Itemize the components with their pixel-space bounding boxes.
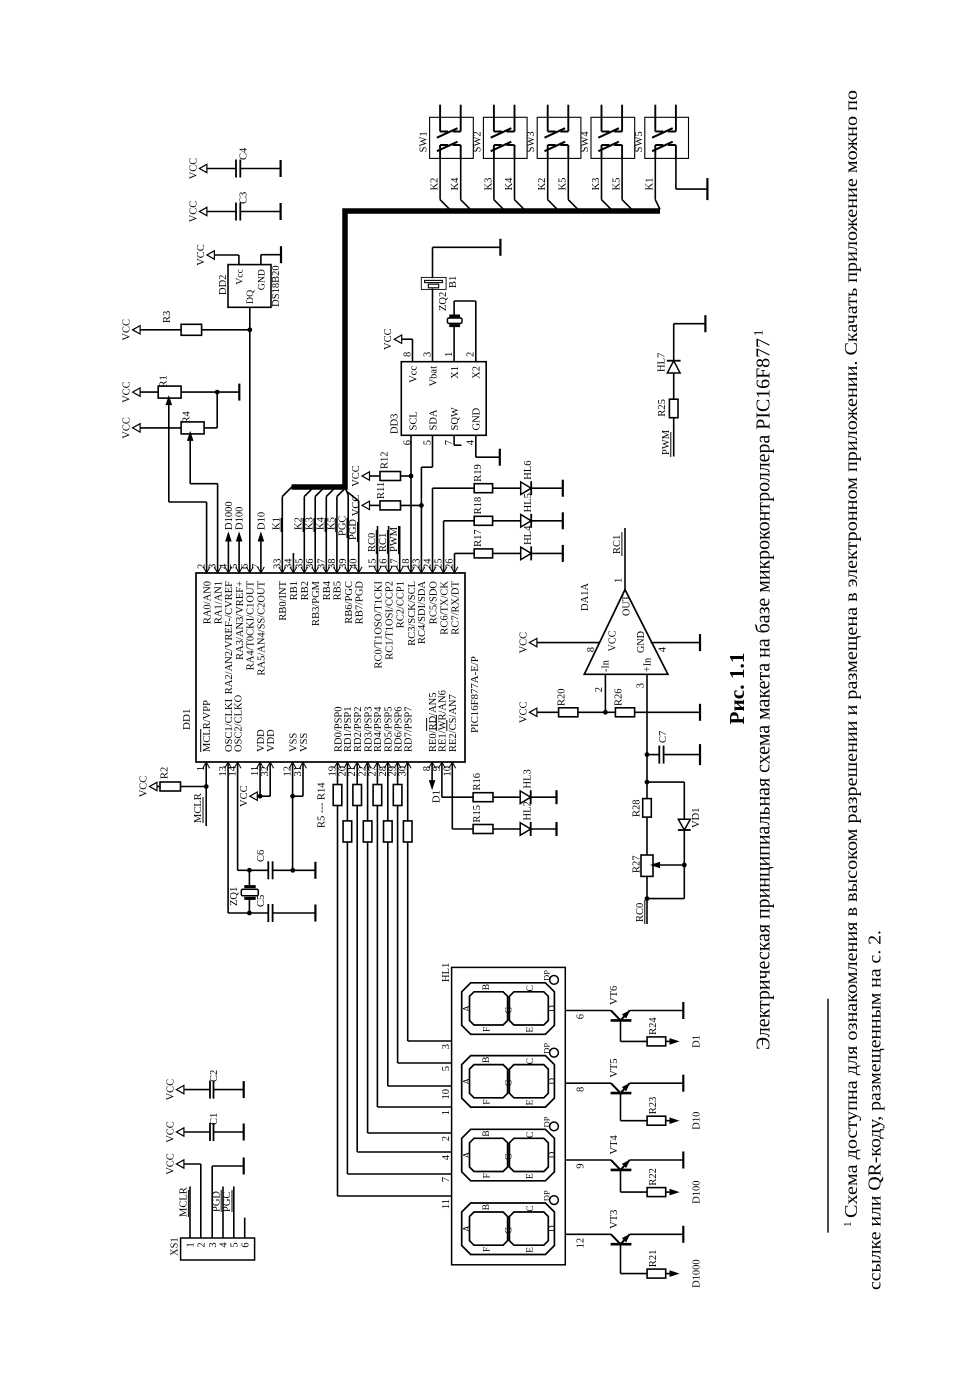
svg-text:DD2: DD2 — [218, 275, 229, 295]
svg-text:K2: K2 — [537, 178, 548, 191]
svg-text:VCC: VCC — [188, 201, 199, 223]
svg-text:R18: R18 — [473, 497, 484, 515]
svg-text:R15: R15 — [472, 805, 483, 823]
svg-text:DA1A: DA1A — [580, 583, 591, 611]
svg-text:VCC: VCC — [239, 785, 250, 807]
svg-text:2: 2 — [466, 352, 477, 357]
svg-text:D1: D1 — [432, 790, 443, 803]
svg-text:SW5: SW5 — [634, 131, 645, 152]
svg-text:A: A — [461, 1151, 472, 1158]
svg-text:RD4/PSP4: RD4/PSP4 — [373, 706, 384, 752]
svg-text:9: 9 — [576, 1164, 587, 1169]
svg-text:F: F — [482, 1247, 493, 1252]
svg-text:R16: R16 — [472, 773, 483, 791]
svg-text:Электрическая принципиальная с: Электрическая принципиальная схема макет… — [754, 338, 775, 1050]
svg-text:RD7/PSP7: RD7/PSP7 — [404, 706, 415, 752]
svg-text:VCC: VCC — [139, 776, 150, 798]
svg-text:D100: D100 — [692, 1180, 703, 1203]
svg-text:D1: D1 — [692, 1035, 703, 1048]
svg-text:RD2/PSP2: RD2/PSP2 — [353, 706, 364, 752]
svg-text:RB0/INT: RB0/INT — [278, 580, 289, 620]
svg-text:DP: DP — [542, 1116, 552, 1127]
svg-text:SCL: SCL — [408, 411, 419, 430]
svg-text:R3: R3 — [162, 311, 173, 323]
svg-text:VT4: VT4 — [609, 1135, 620, 1155]
svg-text:GND: GND — [256, 269, 267, 290]
svg-text:VCC: VCC — [351, 465, 362, 487]
svg-text:SDA: SDA — [428, 409, 439, 430]
svg-text:RB7/PGD: RB7/PGD — [355, 581, 366, 625]
svg-text:R17: R17 — [473, 529, 484, 547]
svg-text:DP: DP — [542, 970, 552, 981]
svg-text:VCC: VCC — [196, 244, 207, 266]
svg-text:VCC: VCC — [188, 158, 199, 180]
svg-text:VCC: VCC — [351, 495, 362, 517]
svg-text:4: 4 — [466, 439, 477, 445]
svg-text:G: G — [504, 1227, 515, 1234]
svg-text:C5: C5 — [256, 895, 267, 907]
svg-text:K4: K4 — [450, 177, 461, 191]
svg-text:GND: GND — [636, 631, 647, 653]
svg-text:K5: K5 — [558, 178, 569, 191]
svg-text:E: E — [525, 1247, 536, 1253]
svg-text:6: 6 — [402, 440, 413, 445]
svg-text:D: D — [547, 1151, 558, 1158]
svg-text:K2: K2 — [430, 178, 441, 191]
svg-text:VD1: VD1 — [691, 808, 702, 828]
svg-text:C: C — [525, 985, 536, 991]
svg-text:3: 3 — [208, 1242, 219, 1247]
svg-text:B: B — [481, 1130, 492, 1136]
svg-text:VSS: VSS — [288, 733, 299, 752]
svg-text:7: 7 — [444, 440, 455, 445]
svg-text:RB5: RB5 — [333, 581, 344, 600]
svg-text:F: F — [482, 1173, 493, 1178]
svg-text:ссылке или QR-коду, размещенны: ссылке или QR-коду, размещенным на с. 2. — [865, 930, 885, 1290]
svg-text:C3: C3 — [239, 192, 250, 204]
svg-text:R20: R20 — [557, 688, 568, 706]
svg-text:F: F — [482, 1027, 493, 1032]
svg-text:C7: C7 — [658, 731, 669, 743]
svg-text:Рис. 1.1: Рис. 1.1 — [725, 653, 749, 725]
svg-text:RB2: RB2 — [300, 581, 311, 600]
svg-text:-In: -In — [601, 660, 612, 672]
svg-text:PIC16F877A-E/P: PIC16F877A-E/P — [469, 656, 481, 733]
svg-text:VSS: VSS — [299, 733, 310, 752]
svg-text:D10: D10 — [692, 1112, 703, 1130]
svg-text:VCC: VCC — [122, 319, 133, 341]
svg-text:ZQ2: ZQ2 — [438, 292, 449, 311]
svg-text:MCLR/VPP: MCLR/VPP — [202, 700, 213, 752]
svg-text:10: 10 — [441, 1089, 452, 1100]
svg-text:DD3: DD3 — [390, 414, 401, 434]
svg-text:12: 12 — [576, 1238, 587, 1249]
svg-text:C4: C4 — [239, 147, 250, 160]
svg-text:VT6: VT6 — [609, 986, 620, 1005]
svg-text:C6: C6 — [256, 850, 267, 862]
svg-text:R1: R1 — [159, 375, 170, 387]
svg-text:Vcc: Vcc — [235, 268, 246, 284]
svg-text:RC4/SDI/SDA: RC4/SDI/SDA — [417, 581, 428, 644]
svg-text:K4: K4 — [504, 177, 515, 191]
svg-text:1: 1 — [842, 1222, 854, 1228]
svg-text:ZQ1: ZQ1 — [229, 887, 240, 906]
svg-text:5: 5 — [422, 440, 433, 445]
svg-text:8: 8 — [586, 647, 597, 652]
svg-text:D100: D100 — [235, 507, 246, 530]
svg-text:3: 3 — [422, 352, 433, 357]
svg-text:OUT: OUT — [622, 594, 633, 616]
svg-text:D1000: D1000 — [224, 501, 235, 530]
svg-text:8: 8 — [402, 352, 413, 357]
svg-text:DP: DP — [542, 1190, 552, 1201]
svg-text:D1000: D1000 — [692, 1259, 703, 1288]
svg-text:DD1: DD1 — [181, 709, 193, 730]
svg-text:4: 4 — [658, 646, 669, 652]
svg-text:R5 --- R14: R5 --- R14 — [317, 782, 328, 828]
svg-text:1: 1 — [441, 1110, 452, 1115]
svg-text:7: 7 — [441, 1177, 452, 1182]
svg-text:RA1/AN1: RA1/AN1 — [213, 581, 224, 624]
svg-text:RB1: RB1 — [289, 581, 300, 600]
svg-text:R21: R21 — [648, 1250, 659, 1268]
svg-text:A: A — [461, 1078, 472, 1085]
svg-text:VCC: VCC — [383, 328, 394, 350]
svg-text:GND: GND — [472, 407, 483, 430]
svg-text:RA4/T0CKI/C1OUT: RA4/T0CKI/C1OUT — [246, 580, 257, 670]
svg-text:RA3/AN3/VREF+: RA3/AN3/VREF+ — [235, 581, 246, 660]
svg-text:1: 1 — [614, 578, 625, 583]
svg-text:RC3/SCK/SCL: RC3/SCK/SCL — [407, 581, 418, 646]
svg-text:R23: R23 — [648, 1097, 659, 1115]
svg-text:1: 1 — [444, 352, 455, 357]
svg-text:X1: X1 — [450, 366, 461, 379]
svg-text:SQW: SQW — [450, 407, 461, 430]
svg-text:SW1: SW1 — [419, 131, 430, 152]
svg-text:D: D — [547, 1225, 558, 1232]
svg-text:SW2: SW2 — [472, 131, 483, 152]
svg-text:2: 2 — [196, 1242, 207, 1247]
svg-text:HL2: HL2 — [523, 801, 534, 820]
svg-text:SW4: SW4 — [580, 131, 591, 153]
svg-text:Vcc: Vcc — [408, 366, 419, 383]
svg-text:5: 5 — [441, 1066, 452, 1071]
svg-text:OSC2/CLKO: OSC2/CLKO — [233, 694, 244, 752]
svg-text:R25: R25 — [657, 399, 668, 417]
svg-text:D: D — [547, 1005, 558, 1012]
svg-text:MCLR: MCLR — [193, 793, 204, 823]
svg-text:HL5: HL5 — [523, 493, 534, 512]
svg-text:RB6/PGC: RB6/PGC — [344, 581, 355, 624]
svg-text:3: 3 — [636, 683, 647, 688]
svg-text:2: 2 — [441, 1136, 452, 1141]
svg-text:VCC: VCC — [165, 1121, 176, 1143]
svg-text:RE2/CS/AN7: RE2/CS/AN7 — [448, 694, 459, 752]
svg-text:VCC: VCC — [165, 1153, 176, 1175]
svg-text:K3: K3 — [483, 178, 494, 191]
svg-text:HL3: HL3 — [523, 769, 534, 788]
svg-text:6: 6 — [576, 1014, 587, 1019]
svg-text:F: F — [482, 1099, 493, 1104]
svg-text:B: B — [481, 984, 492, 990]
svg-text:B: B — [481, 1057, 492, 1063]
svg-text:Vbat: Vbat — [428, 366, 439, 386]
svg-text:R26: R26 — [614, 688, 625, 706]
svg-text:K1: K1 — [645, 178, 656, 191]
svg-text:RA2/AN2/VREF-/CVREF: RA2/AN2/VREF-/CVREF — [224, 581, 235, 694]
svg-text:RC5/SDO: RC5/SDO — [428, 581, 439, 625]
svg-text:R24: R24 — [648, 1017, 659, 1035]
svg-text:VCC: VCC — [122, 417, 133, 439]
svg-text:X2: X2 — [472, 366, 483, 379]
svg-text:RA5/AN4/SS/C2OUT: RA5/AN4/SS/C2OUT — [257, 580, 268, 675]
svg-text:DQ: DQ — [245, 290, 256, 304]
svg-text:C: C — [525, 1205, 536, 1211]
svg-text:A: A — [461, 1225, 472, 1232]
svg-text:Схема доступна для ознакомлени: Схема доступна для ознакомления в высоко… — [841, 90, 861, 1218]
svg-text:VT3: VT3 — [609, 1210, 620, 1229]
svg-text:+In: +In — [643, 658, 654, 672]
svg-text:4: 4 — [219, 1242, 230, 1248]
svg-text:A: A — [461, 1005, 472, 1012]
svg-text:B1: B1 — [448, 276, 459, 288]
svg-text:1: 1 — [752, 330, 766, 336]
svg-text:C: C — [525, 1132, 536, 1138]
svg-text:R19: R19 — [473, 464, 484, 482]
svg-text:R27: R27 — [632, 855, 643, 873]
svg-text:1: 1 — [186, 1242, 197, 1247]
svg-text:VCC: VCC — [518, 702, 529, 724]
svg-text:RB3/PGM: RB3/PGM — [311, 580, 322, 626]
svg-text:E: E — [525, 1173, 536, 1179]
svg-text:HL6: HL6 — [523, 460, 534, 479]
svg-text:VDD: VDD — [266, 729, 277, 752]
svg-text:E: E — [525, 1099, 536, 1105]
svg-text:E: E — [525, 1027, 536, 1033]
svg-text:R12: R12 — [380, 451, 391, 469]
svg-text:D10: D10 — [257, 512, 268, 530]
svg-text:SW3: SW3 — [526, 131, 537, 152]
svg-text:VCC: VCC — [518, 632, 529, 654]
svg-text:G: G — [504, 1007, 515, 1014]
svg-text:RC7/RX/DT: RC7/RX/DT — [450, 580, 461, 634]
svg-text:3: 3 — [441, 1044, 452, 1049]
svg-text:B: B — [481, 1204, 492, 1210]
svg-text:G: G — [504, 1079, 515, 1086]
svg-text:DS18B20: DS18B20 — [271, 265, 282, 306]
svg-text:11: 11 — [441, 1199, 452, 1209]
svg-text:VCC: VCC — [165, 1079, 176, 1101]
svg-text:K3: K3 — [591, 178, 602, 191]
svg-text:4: 4 — [441, 1154, 452, 1160]
svg-text:RC2/CCP1: RC2/CCP1 — [396, 581, 407, 628]
svg-text:R2: R2 — [160, 767, 171, 779]
svg-text:C: C — [525, 1058, 536, 1064]
svg-text:2: 2 — [594, 687, 605, 692]
svg-text:D: D — [547, 1078, 558, 1085]
svg-text:VCC: VCC — [122, 381, 133, 403]
svg-text:VT5: VT5 — [609, 1058, 620, 1077]
svg-text:8: 8 — [576, 1087, 587, 1092]
svg-text:K5: K5 — [612, 178, 623, 191]
svg-text:XS1: XS1 — [170, 1237, 181, 1256]
svg-text:HL1: HL1 — [441, 963, 452, 982]
svg-text:C1: C1 — [209, 1113, 220, 1125]
svg-text:RC1/T1OSI/CCP2: RC1/T1OSI/CCP2 — [384, 581, 395, 660]
svg-text:VCC: VCC — [608, 630, 619, 651]
svg-text:RA0/AN0: RA0/AN0 — [202, 581, 213, 624]
svg-text:HL4: HL4 — [523, 525, 534, 545]
svg-text:6: 6 — [240, 1242, 251, 1247]
svg-text:R22: R22 — [648, 1168, 659, 1186]
svg-text:G: G — [504, 1153, 515, 1160]
svg-text:RC0/T1OSO/T1CKI: RC0/T1OSO/T1CKI — [373, 581, 384, 669]
svg-text:DP: DP — [542, 1043, 552, 1054]
svg-text:R11: R11 — [376, 482, 387, 499]
svg-text:R28: R28 — [632, 799, 643, 817]
svg-text:C2: C2 — [209, 1070, 220, 1082]
svg-text:HL7: HL7 — [657, 353, 668, 372]
svg-text:RC6/TX/CK: RC6/TX/CK — [439, 581, 450, 635]
svg-text:5: 5 — [229, 1242, 240, 1247]
svg-text:RB4: RB4 — [322, 580, 333, 600]
svg-text:R4: R4 — [182, 410, 193, 423]
